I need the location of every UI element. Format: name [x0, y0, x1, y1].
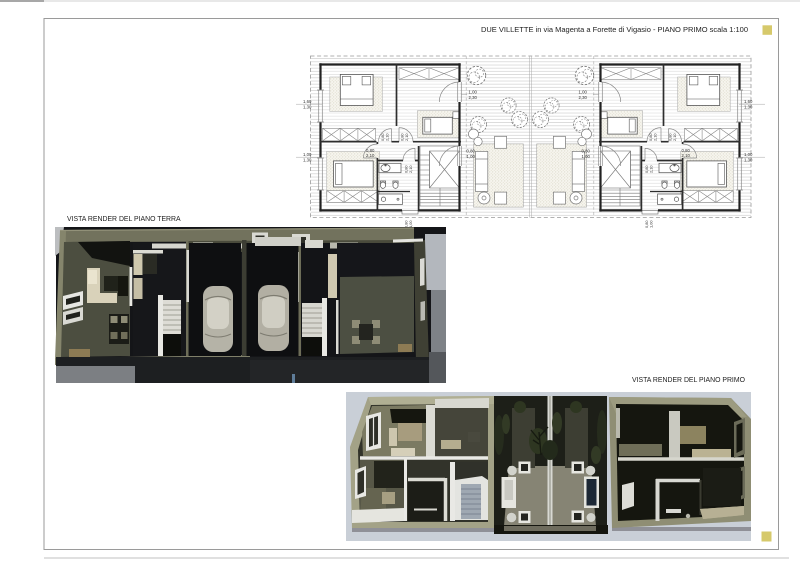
svg-text:2,10: 2,10 — [404, 133, 409, 141]
svg-text:2,10: 2,10 — [648, 165, 653, 173]
svg-text:2,10: 2,10 — [682, 153, 691, 158]
svg-text:1,30: 1,30 — [744, 157, 753, 162]
svg-text:2,30: 2,30 — [469, 95, 478, 100]
svg-text:1,00: 1,00 — [648, 220, 653, 228]
svg-text:2,10: 2,10 — [384, 133, 389, 141]
svg-text:1,00: 1,00 — [469, 90, 478, 95]
svg-text:1,30: 1,30 — [303, 157, 312, 162]
svg-text:1,00: 1,00 — [579, 90, 588, 95]
svg-text:VISTA RENDER DEL PIANO TERRA: VISTA RENDER DEL PIANO TERRA — [67, 216, 181, 223]
svg-text:0,80: 0,80 — [467, 149, 476, 154]
svg-text:0,80: 0,80 — [682, 148, 691, 153]
svg-text:0,80: 0,80 — [582, 149, 591, 154]
svg-text:1,30: 1,30 — [303, 104, 312, 109]
svg-text:0,80: 0,80 — [366, 148, 375, 153]
svg-text:DUE VILLETTE in via Magenta a: DUE VILLETTE in via Magenta a Forette di… — [481, 25, 748, 34]
svg-text:2,10: 2,10 — [672, 133, 677, 141]
svg-text:2,10: 2,10 — [408, 165, 413, 173]
svg-text:2,10: 2,10 — [652, 133, 657, 141]
svg-text:1,60: 1,60 — [303, 99, 312, 104]
svg-text:VISTA RENDER DEL PIANO PRIMO: VISTA RENDER DEL PIANO PRIMO — [632, 377, 746, 384]
svg-text:1,00: 1,00 — [744, 152, 753, 157]
svg-text:1,00: 1,00 — [467, 154, 476, 159]
svg-text:1,00: 1,00 — [582, 154, 591, 159]
svg-text:1,60: 1,60 — [744, 99, 753, 104]
svg-text:1,30: 1,30 — [744, 104, 753, 109]
svg-text:2,10: 2,10 — [366, 153, 375, 158]
svg-text:2,30: 2,30 — [579, 95, 588, 100]
svg-text:1,00: 1,00 — [303, 152, 312, 157]
svg-text:1,00: 1,00 — [408, 220, 413, 228]
